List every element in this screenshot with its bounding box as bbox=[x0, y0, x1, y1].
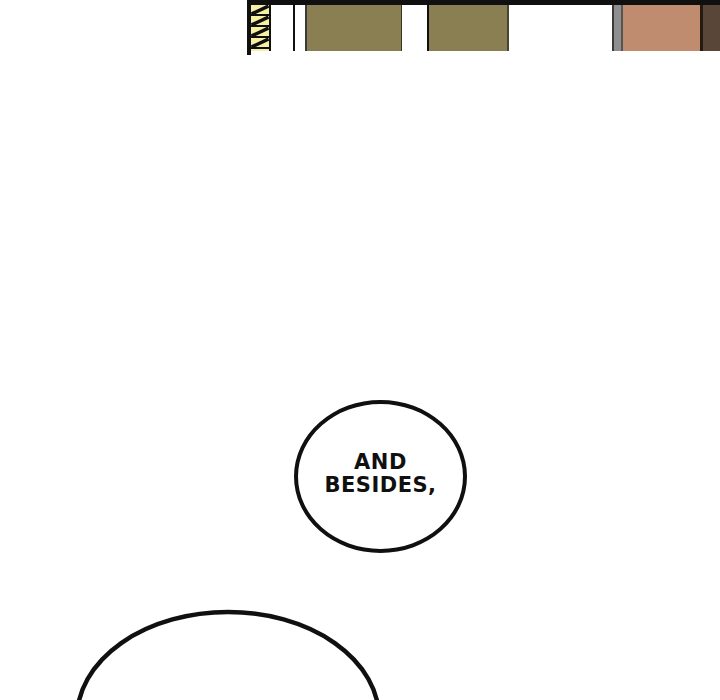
speech-bubble-text: AND BESIDES, bbox=[324, 451, 436, 497]
gray-book-spine bbox=[614, 0, 621, 51]
olive-book-spine-2 bbox=[427, 0, 509, 51]
olive-book-spine-1 bbox=[307, 0, 402, 51]
speech-line: BESIDES, bbox=[324, 474, 436, 497]
speech-line: AND bbox=[324, 451, 436, 474]
shelf-line bbox=[293, 0, 295, 51]
partial-speech-bubble bbox=[0, 595, 450, 700]
webtoon-page: AND BESIDES, bbox=[0, 0, 720, 700]
panel-bottom-strip bbox=[0, 0, 720, 58]
spine-right-border bbox=[269, 0, 272, 51]
dark-brown-book-spine bbox=[703, 0, 720, 51]
striped-book-spine bbox=[251, 0, 269, 51]
panel-border-bottom bbox=[247, 0, 720, 5]
speech-bubble: AND BESIDES, bbox=[294, 400, 467, 553]
tan-book-spine bbox=[623, 0, 701, 51]
